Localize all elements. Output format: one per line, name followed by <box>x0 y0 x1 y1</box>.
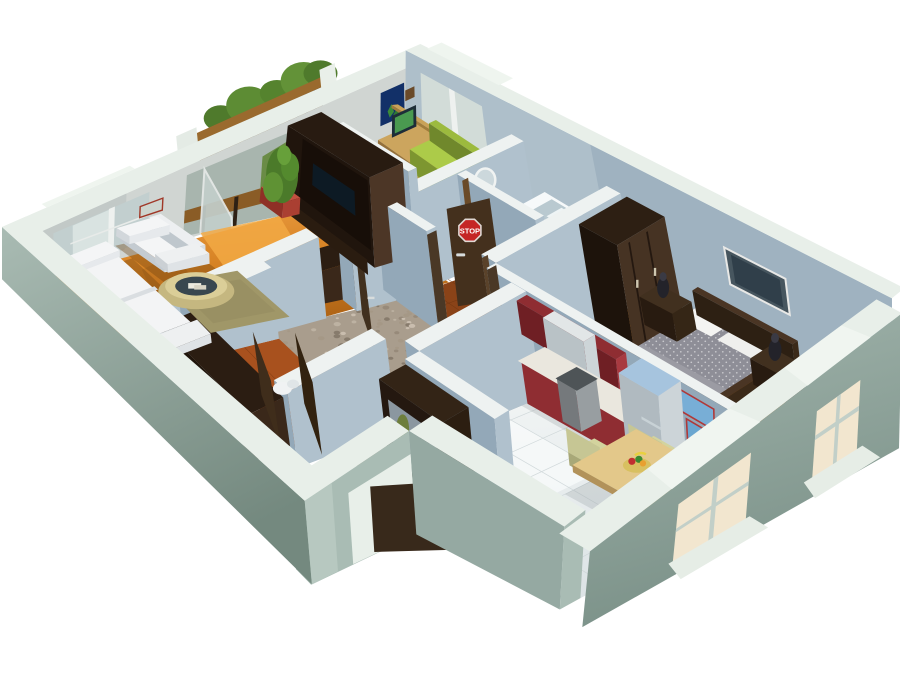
svg-text:STOP: STOP <box>460 226 480 235</box>
